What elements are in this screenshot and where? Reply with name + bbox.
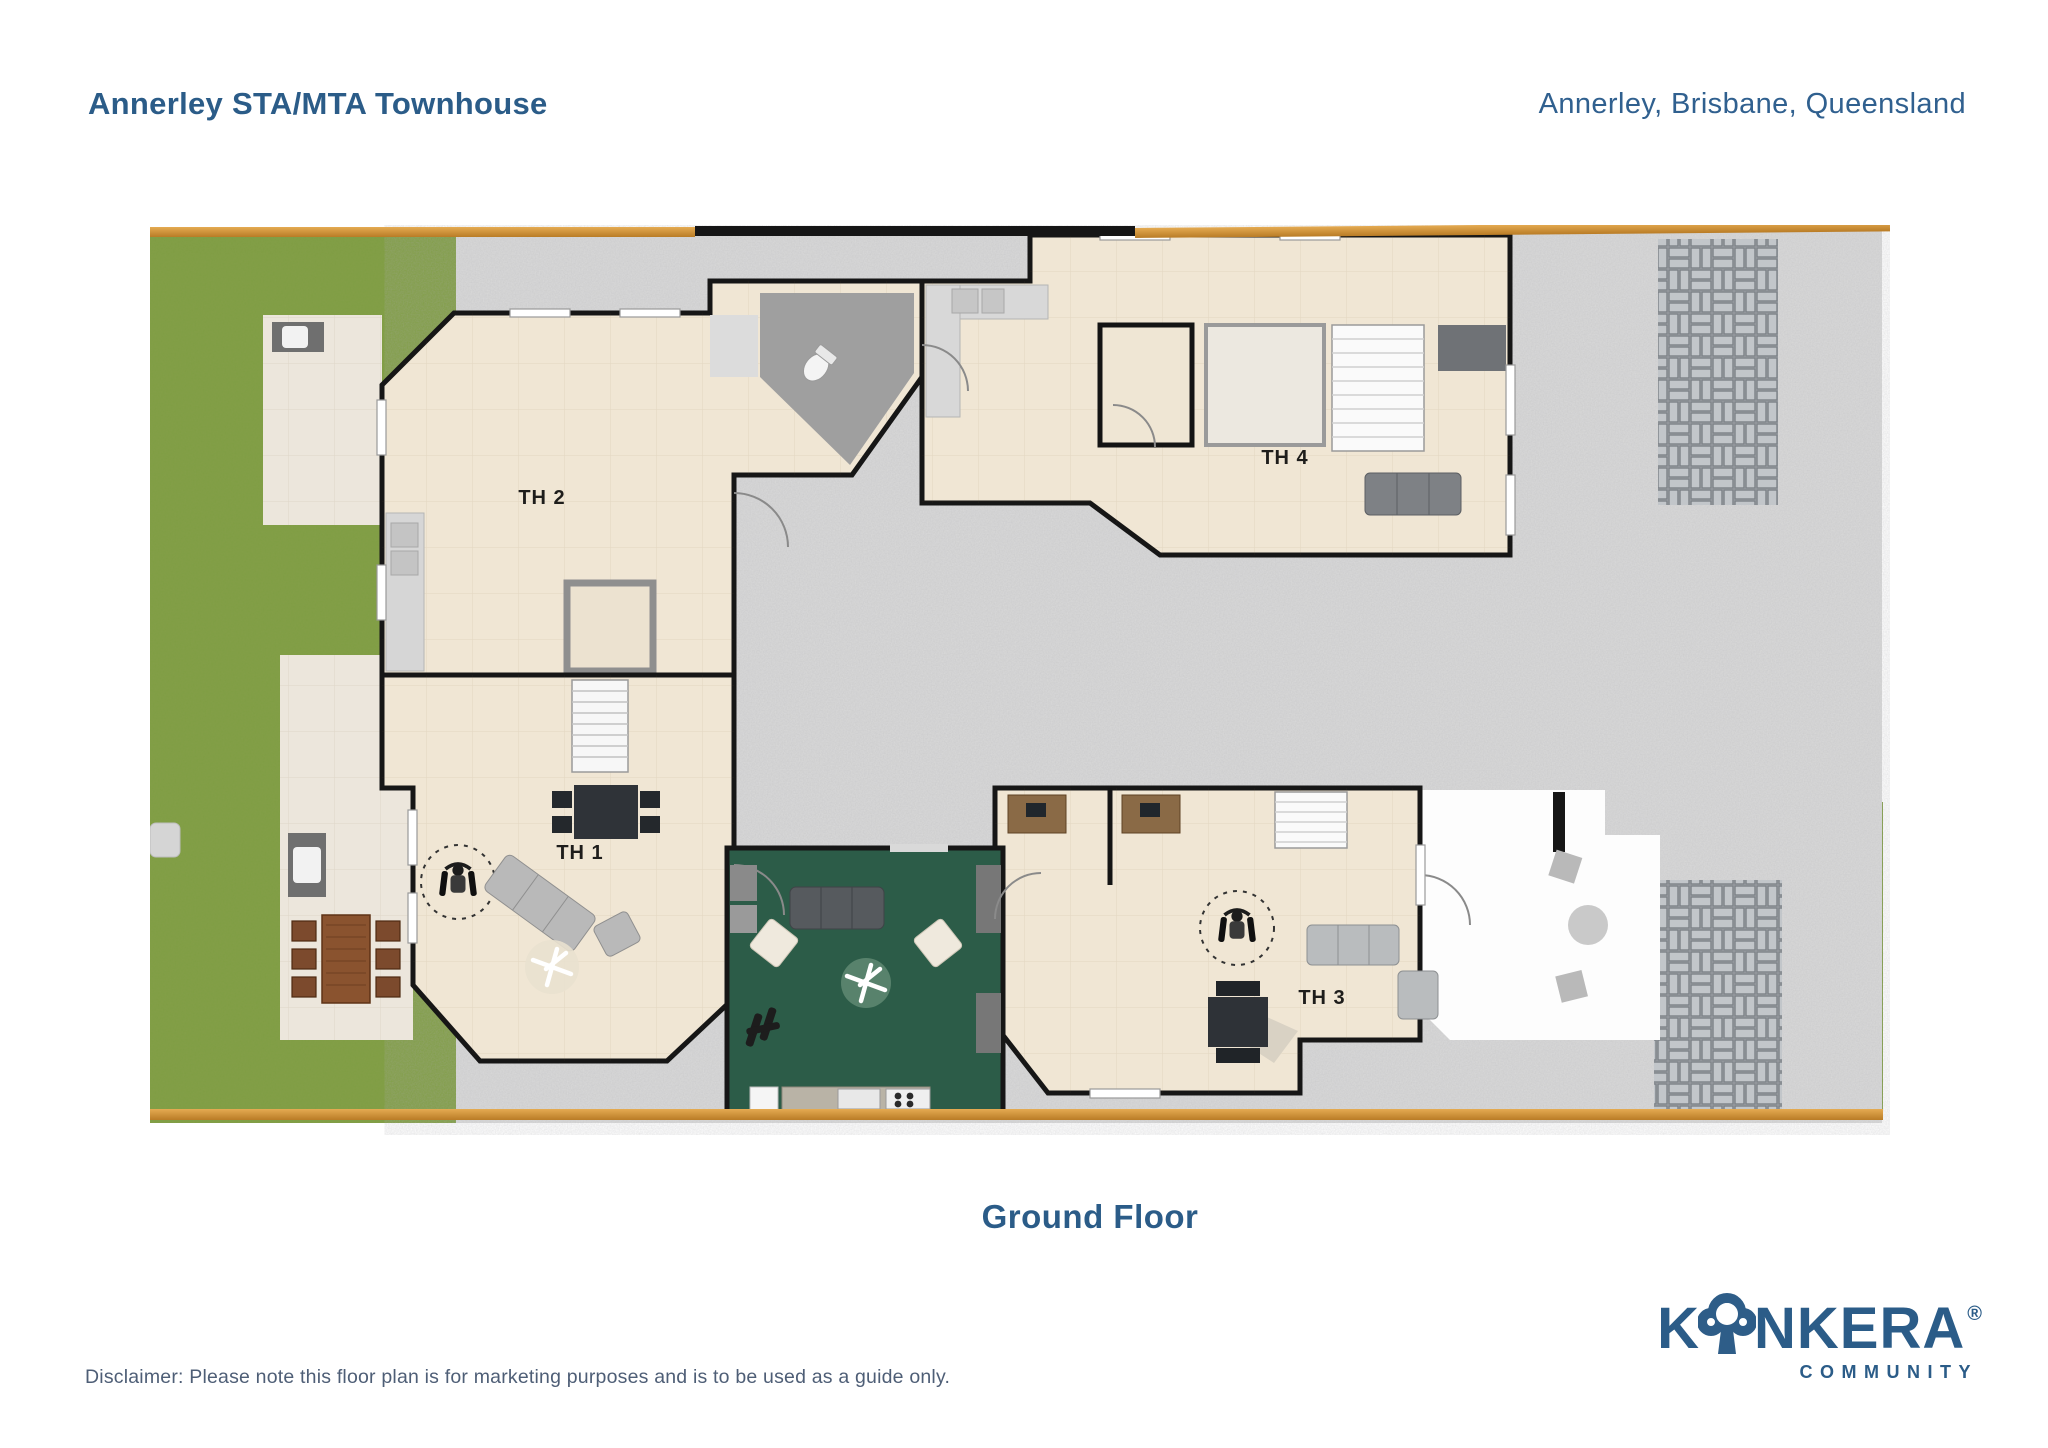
logo-letters-nkera: NKERA <box>1754 1300 1965 1358</box>
th2-patio <box>263 315 382 525</box>
th4-room <box>1206 325 1324 445</box>
disclaimer-text: Disclaimer: Please note this floor plan … <box>85 1366 950 1389</box>
unit-label-th2: TH 2 <box>518 487 565 509</box>
side-gate <box>150 823 180 857</box>
logo-wordmark: K NKERA ® <box>1657 1292 1982 1358</box>
th3-sofa <box>1307 925 1399 965</box>
floorplan-canvas: TH 2 <box>150 225 1890 1135</box>
logo-letter-k: K <box>1657 1300 1700 1358</box>
registered-mark: ® <box>1967 1304 1982 1324</box>
floor-caption: Ground Floor <box>982 1198 1199 1236</box>
paver-courtyard-bottom <box>1654 880 1782 1113</box>
lounge-kitchenette <box>750 1087 930 1111</box>
unit-label-th3: TH 3 <box>1298 987 1345 1009</box>
paver-courtyard-top <box>1658 239 1778 505</box>
kinkera-logo: K NKERA ® COMMUNITY <box>1672 1292 1982 1383</box>
ceiling-fan <box>525 940 579 994</box>
th3-desk <box>1122 795 1180 833</box>
communal-lounge <box>727 844 1003 1113</box>
th1-stairs <box>572 680 628 772</box>
th3-dining-set <box>1208 981 1268 1063</box>
th2-store-room <box>567 583 653 671</box>
unit-th1: TH 1 <box>382 675 734 1061</box>
th3-armchair <box>1398 971 1438 1019</box>
th4-bench <box>1438 325 1506 371</box>
th4-room <box>1100 325 1192 445</box>
page-title: Annerley STA/MTA Townhouse <box>88 86 548 122</box>
garage-wall <box>695 226 1135 236</box>
th4-stairs <box>1332 325 1424 451</box>
floorplan-page: Annerley STA/MTA Townhouse Annerley, Bri… <box>0 0 2048 1448</box>
unit-label-th4: TH 4 <box>1261 447 1308 469</box>
outdoor-dining-table <box>322 915 370 1003</box>
th3-stairs <box>1275 792 1347 848</box>
ceiling-fan <box>841 958 891 1008</box>
th3-desk <box>1008 795 1066 833</box>
outdoor-round-table <box>1568 905 1608 945</box>
tree-icon <box>1698 1292 1756 1358</box>
unit-label-th1: TH 1 <box>556 842 603 864</box>
page-location: Annerley, Brisbane, Queensland <box>1539 88 1966 121</box>
th4-sofa <box>1365 473 1461 515</box>
lounge-sofa <box>790 887 884 929</box>
logo-subtitle: COMMUNITY <box>1800 1362 1979 1383</box>
